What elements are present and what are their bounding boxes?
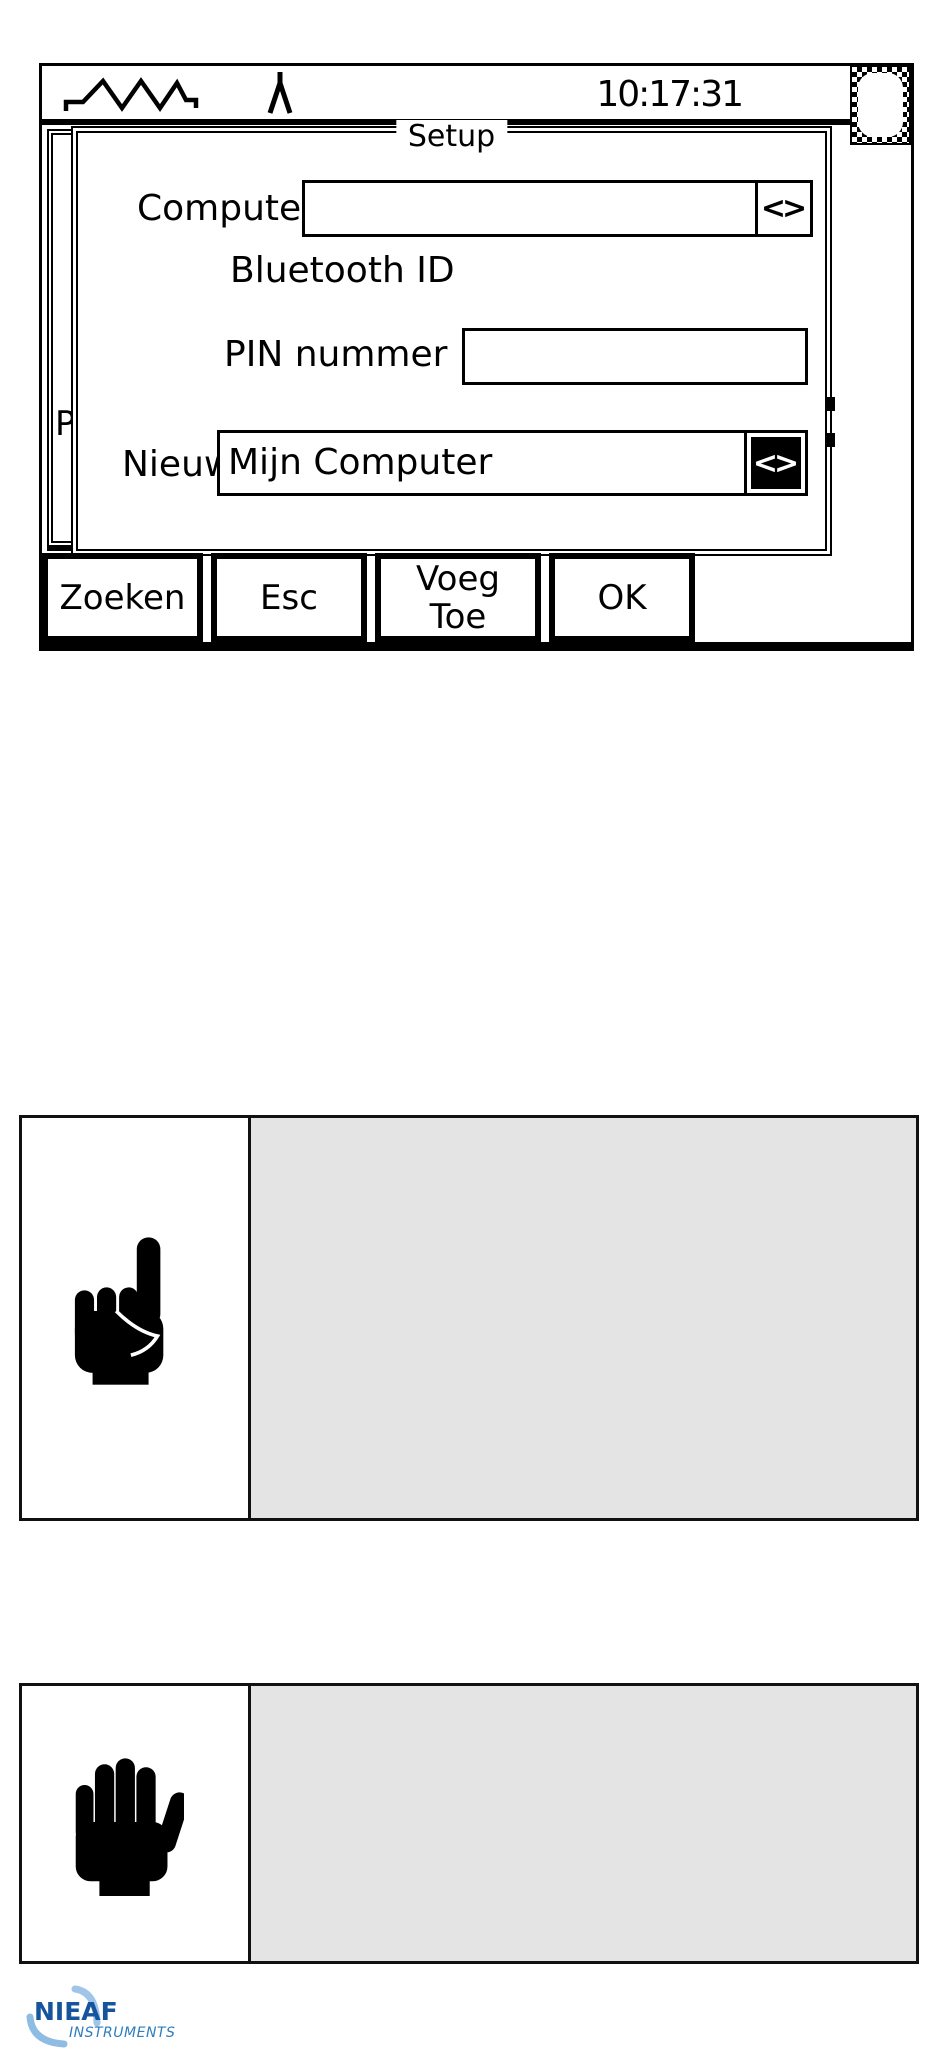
pointing-finger-icon	[69, 1236, 181, 1386]
softkey-ok[interactable]: OK	[549, 553, 695, 642]
warning-text-cell	[251, 1686, 916, 1961]
setup-dialog: Setup Computer <> Bluetooth ID PIN numme…	[71, 126, 832, 556]
clock-text: 10:17:31	[596, 74, 742, 115]
nieuw-value: Mijn Computer	[220, 444, 744, 482]
warning-box	[19, 1683, 919, 1964]
logo-brand-text: NIEAF	[34, 1997, 118, 2026]
nieuw-spinner[interactable]: <>	[744, 433, 805, 493]
nieuw-spinner-highlight: <>	[751, 437, 801, 489]
softkey-voeg-toe[interactable]: Voeg Toe	[375, 553, 541, 642]
computer-input[interactable]: <>	[302, 180, 813, 237]
logo-subtitle-text: INSTRUMENTS	[69, 2025, 175, 2041]
note-text-cell	[251, 1118, 916, 1518]
warning-icon-cell	[22, 1686, 251, 1961]
bluetooth-id-label: Bluetooth ID	[230, 252, 455, 290]
peak-icon	[266, 69, 294, 115]
device-screen: P 10:17:31 Setup Computer <>	[39, 63, 914, 651]
nieaf-logo: NIEAF INSTRUMENTS	[18, 1985, 178, 2051]
note-icon-cell	[22, 1118, 251, 1518]
note-box	[19, 1115, 919, 1521]
computer-spinner[interactable]: <>	[755, 183, 810, 234]
nieuw-select[interactable]: Mijn Computer <>	[217, 430, 808, 496]
spinner-arrows-icon: <>	[761, 191, 807, 226]
dialog-title: Setup	[396, 120, 507, 154]
spinner-arrows-icon: <>	[753, 446, 799, 481]
status-bar: 10:17:31	[42, 66, 911, 125]
pin-number-label: PIN nummer	[224, 336, 447, 374]
scroll-mark	[827, 433, 835, 447]
pin-number-input[interactable]	[462, 328, 808, 385]
softkey-zoeken[interactable]: Zoeken	[42, 553, 203, 642]
softkey-esc[interactable]: Esc	[211, 553, 367, 642]
scroll-mark	[827, 397, 835, 411]
battery-core	[858, 73, 903, 137]
battery-icon	[850, 65, 911, 145]
waveform-icon	[63, 75, 205, 113]
computer-label: Computer	[137, 190, 316, 228]
stop-hand-icon	[74, 1748, 184, 1896]
manual-page: P 10:17:31 Setup Computer <>	[0, 0, 950, 2051]
